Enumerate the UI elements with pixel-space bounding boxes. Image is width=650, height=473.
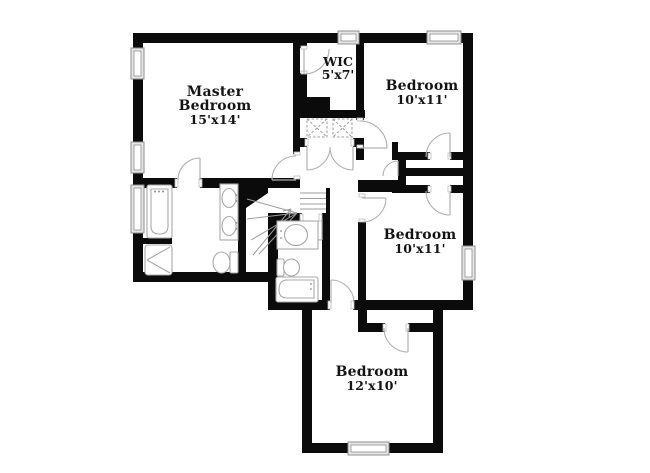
door-master-bath bbox=[175, 158, 202, 187]
wall-bedroom2-left bbox=[358, 222, 366, 300]
wall-top bbox=[133, 33, 473, 43]
toilet-icon bbox=[213, 252, 238, 273]
door-bedroom2-closet bbox=[426, 186, 451, 215]
wall-vanity bbox=[238, 183, 246, 275]
bathtub-icon bbox=[147, 185, 172, 238]
door-bedroom1-closet bbox=[426, 133, 451, 159]
dryer-icon bbox=[333, 119, 352, 137]
window-masterbath-left bbox=[131, 185, 144, 233]
floor-plan-canvas: Master Bedroom 15'x14' WIC 5'x7' Bedroom… bbox=[0, 0, 650, 473]
door-laundry-double bbox=[305, 139, 354, 170]
sink-vanity-icon bbox=[277, 221, 318, 249]
wall-wic-left-b bbox=[300, 73, 307, 97]
window-top-wic bbox=[338, 31, 359, 44]
window-top-bedroom1 bbox=[427, 31, 461, 44]
wall-bedroom1-left bbox=[356, 43, 364, 120]
wall-tub-divider bbox=[143, 238, 172, 244]
wall-bottom-right bbox=[353, 300, 473, 310]
hall-bathroom-fixtures bbox=[276, 221, 318, 302]
bedroom3-dimensions: 12'x10' bbox=[346, 378, 397, 393]
wall-closet-c1 bbox=[392, 185, 430, 193]
wall-bedroom3-closet-r bbox=[408, 323, 433, 332]
door-linen-closet bbox=[383, 161, 398, 176]
wall-bedroom1-left-stub bbox=[356, 147, 364, 160]
master-bedroom-dimensions: 15'x14' bbox=[189, 112, 240, 127]
wall-closet-a2 bbox=[450, 152, 465, 160]
master-bathroom-fixtures bbox=[145, 184, 238, 275]
window-master-left-1 bbox=[131, 48, 144, 79]
door-bedroom2-entry bbox=[359, 194, 386, 222]
window-bottom-bedroom3 bbox=[348, 442, 389, 455]
wall-hallbath-right bbox=[322, 213, 330, 300]
wic-dimensions: 5'x7' bbox=[322, 67, 355, 82]
shower-icon bbox=[145, 245, 172, 275]
wall-bedroom3-closet-stub bbox=[358, 300, 367, 332]
wall-closet-a1 bbox=[392, 152, 430, 160]
washer-icon bbox=[307, 119, 327, 137]
door-master-hall bbox=[272, 152, 300, 180]
window-master-left-2 bbox=[131, 142, 144, 173]
door-bedroom3-closet bbox=[383, 324, 409, 352]
laundry-closet bbox=[307, 119, 352, 137]
bathtub-icon bbox=[276, 277, 318, 302]
wall-closet-mid bbox=[406, 168, 465, 176]
wall-stair-stringer bbox=[326, 188, 330, 214]
wall-bedroom3-right bbox=[433, 300, 443, 453]
wall-bedroom3-left bbox=[302, 300, 312, 453]
window-right-bedroom2 bbox=[462, 246, 475, 280]
double-sink-vanity-icon bbox=[220, 184, 238, 240]
toilet-icon bbox=[277, 259, 300, 276]
wall-closet-c2 bbox=[450, 185, 465, 193]
wall-wic-bottom bbox=[300, 110, 365, 118]
floor-plan-drawing: Master Bedroom 15'x14' WIC 5'x7' Bedroom… bbox=[0, 0, 650, 473]
door-bedroom3-entry bbox=[328, 280, 354, 309]
wall-master-right bbox=[293, 43, 300, 154]
bedroom2-dimensions: 10'x11' bbox=[394, 241, 445, 256]
bedroom1-dimensions: 10'x11' bbox=[396, 92, 447, 107]
